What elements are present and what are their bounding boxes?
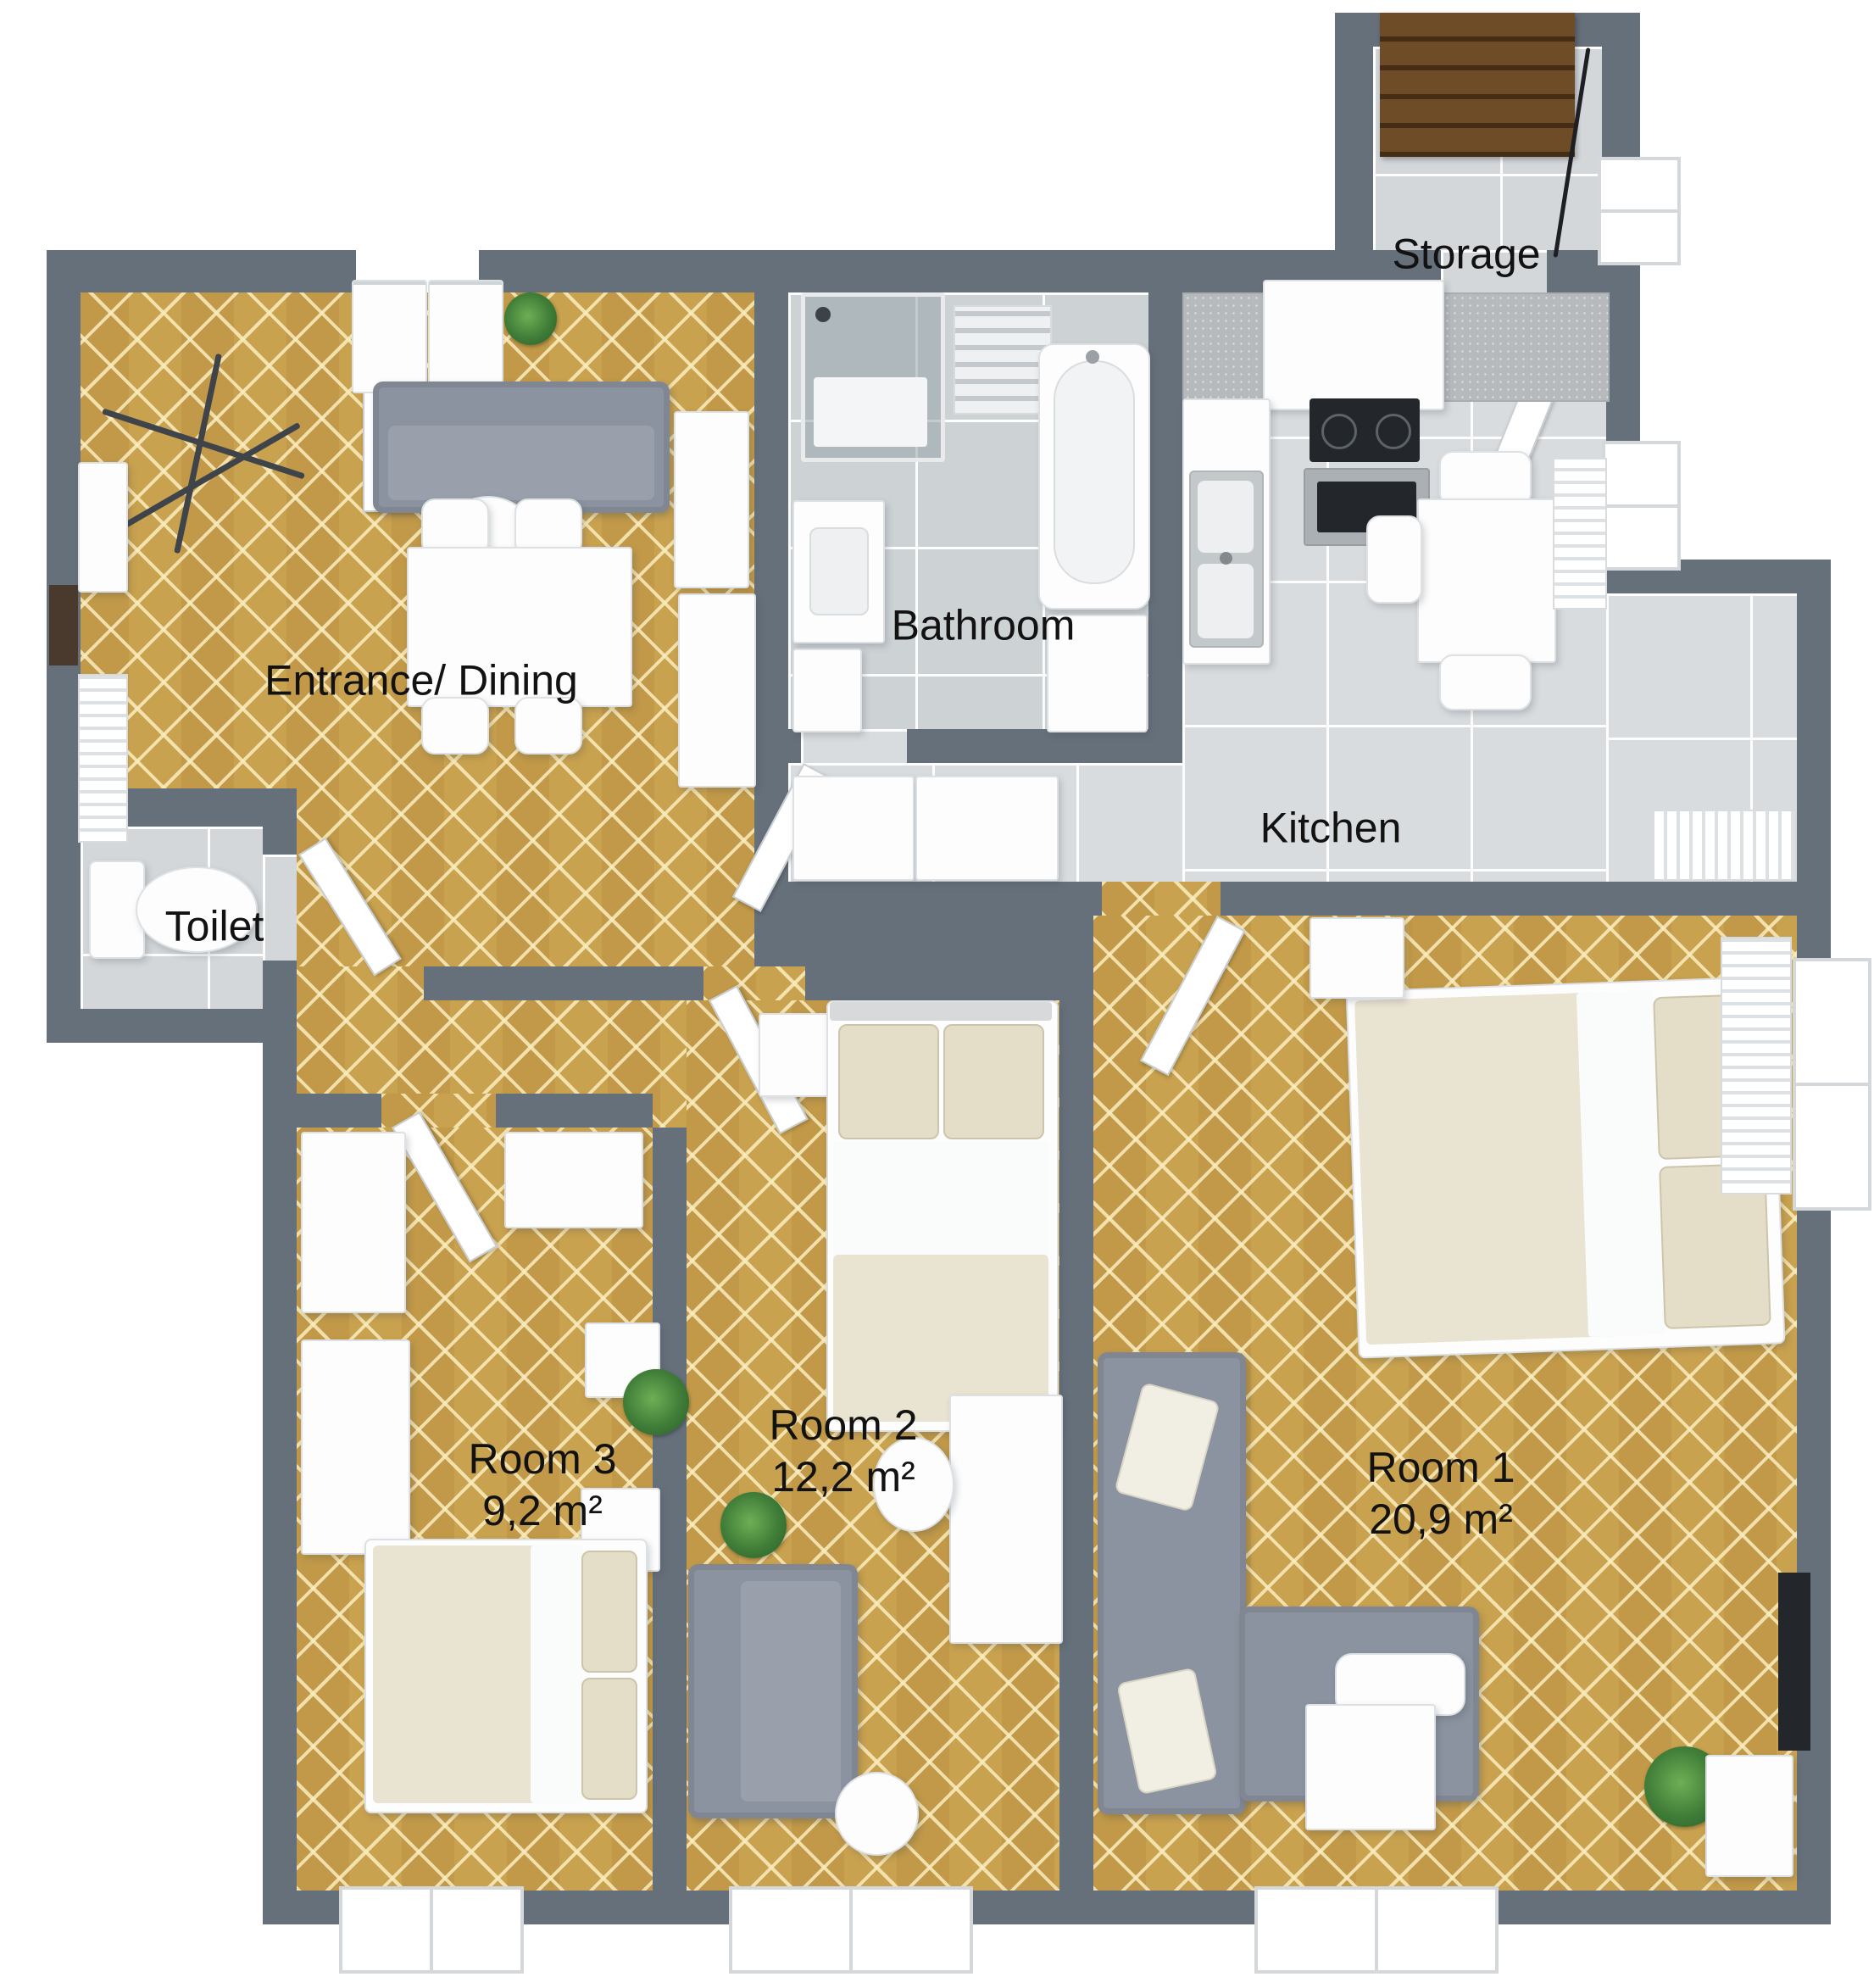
showerhead-icon	[815, 307, 831, 322]
room-label-room3: Room 3 9,2 m²	[468, 1434, 616, 1537]
pillow	[943, 1024, 1044, 1139]
tv-panel	[1778, 1573, 1810, 1751]
burner-icon	[1321, 414, 1357, 449]
room-label-bathroom: Bathroom	[892, 600, 1076, 652]
wardrobe	[678, 593, 756, 788]
room-label-entrance: Entrance/ Dining	[264, 655, 578, 707]
nightstand	[1310, 917, 1404, 999]
plant-icon	[504, 292, 557, 345]
wall-bathroom-left	[754, 250, 788, 882]
room1-bed	[1346, 976, 1782, 1355]
faucet-icon	[1220, 552, 1232, 565]
shower	[801, 292, 945, 462]
wall-hall-mid	[424, 966, 687, 1000]
room1-area: 20,9 m²	[1366, 1494, 1515, 1545]
wall-room3-left	[263, 1128, 297, 1924]
towel-radiator	[954, 305, 1052, 415]
room1-door-opening	[1102, 882, 1221, 916]
room2-bed	[826, 1000, 1055, 1428]
room3-window	[339, 1886, 524, 1974]
room3-bed	[364, 1539, 644, 1810]
wall-bathroom-right	[1148, 292, 1182, 729]
shower-tray	[814, 377, 927, 447]
sofa-seat	[741, 1581, 841, 1801]
sink-basin	[809, 527, 869, 615]
room2-area: 12,2 m²	[769, 1451, 917, 1503]
kitchen-chair	[1366, 515, 1422, 604]
bathroom-vanity	[792, 500, 885, 643]
kitchen-cabinet	[915, 776, 1059, 881]
kitchen-table	[1417, 498, 1556, 663]
media-console	[1705, 1755, 1793, 1877]
pillow	[581, 1678, 637, 1800]
room2-window	[729, 1886, 973, 1974]
plant-icon	[623, 1369, 689, 1435]
bath-faucet-icon	[1086, 350, 1099, 364]
room3-name: Room 3	[468, 1434, 616, 1485]
burner-icon	[1376, 414, 1411, 449]
staircase	[1380, 13, 1575, 157]
sink-basin	[1198, 481, 1254, 553]
room1-name: Room 1	[1366, 1442, 1515, 1494]
room-label-room1: Room 1 20,9 m²	[1366, 1442, 1515, 1545]
radiator	[1653, 810, 1796, 881]
room3-area: 9,2 m²	[468, 1485, 616, 1537]
duvet	[373, 1545, 542, 1803]
bathroom-door-opening	[801, 729, 907, 763]
extractor-hood	[1263, 280, 1444, 410]
room-label-room2: Room 2 12,2 m²	[769, 1400, 917, 1503]
shelf-unit	[352, 280, 427, 393]
sideboard	[674, 411, 749, 588]
pillow	[581, 1551, 637, 1673]
bathroom-cabinet	[792, 649, 862, 732]
room-label-kitchen: Kitchen	[1260, 803, 1402, 855]
room-label-toilet: Toilet	[165, 901, 264, 953]
kitchen-window	[1602, 441, 1681, 571]
kitchen-chair	[1439, 654, 1532, 710]
cooktop	[1310, 398, 1420, 462]
kitchen-cabinet	[792, 776, 915, 881]
dresser	[301, 1339, 410, 1555]
wall-room1-left	[1059, 882, 1093, 1891]
wardrobe	[301, 1132, 406, 1313]
room2-sofa	[688, 1564, 858, 1818]
nightstand	[759, 1013, 830, 1097]
room-label-storage: Storage	[1392, 229, 1540, 281]
wall-storage-left	[1335, 13, 1373, 292]
bed-sheet	[833, 1141, 1048, 1258]
wall-kitchen-block	[754, 882, 1093, 966]
side-table	[835, 1772, 919, 1856]
console-table	[78, 462, 128, 593]
wall-outer-step	[263, 1043, 297, 1128]
kitchen-sink	[1189, 471, 1264, 648]
desk	[949, 1395, 1063, 1644]
room1-side-window	[1793, 958, 1871, 1211]
sofa-seat	[388, 426, 654, 500]
shelf-unit	[428, 280, 503, 393]
pillow	[838, 1024, 939, 1139]
headboard	[830, 1002, 1052, 1021]
toilet-door-opening	[263, 855, 297, 961]
bathtub-basin	[1054, 360, 1135, 584]
storage-window	[1598, 157, 1681, 265]
wall-toilet-bottom	[47, 1009, 297, 1043]
room2-name: Room 2	[769, 1400, 917, 1451]
wardrobe	[504, 1132, 643, 1228]
radiator	[78, 674, 128, 843]
wall-picture	[49, 585, 78, 665]
floorplan: Entrance/ Dining Bathroom Kitchen Storag…	[0, 0, 1874, 1988]
sink-basin	[1198, 564, 1254, 638]
bed-sheet	[1576, 990, 1665, 1337]
entrance-sofa	[373, 381, 670, 513]
radiator	[1721, 937, 1792, 1194]
bed-sheet	[531, 1545, 583, 1803]
radiator	[1553, 458, 1607, 610]
room1-window	[1254, 1886, 1499, 1974]
bathtub	[1038, 343, 1150, 610]
desk	[1305, 1704, 1436, 1830]
